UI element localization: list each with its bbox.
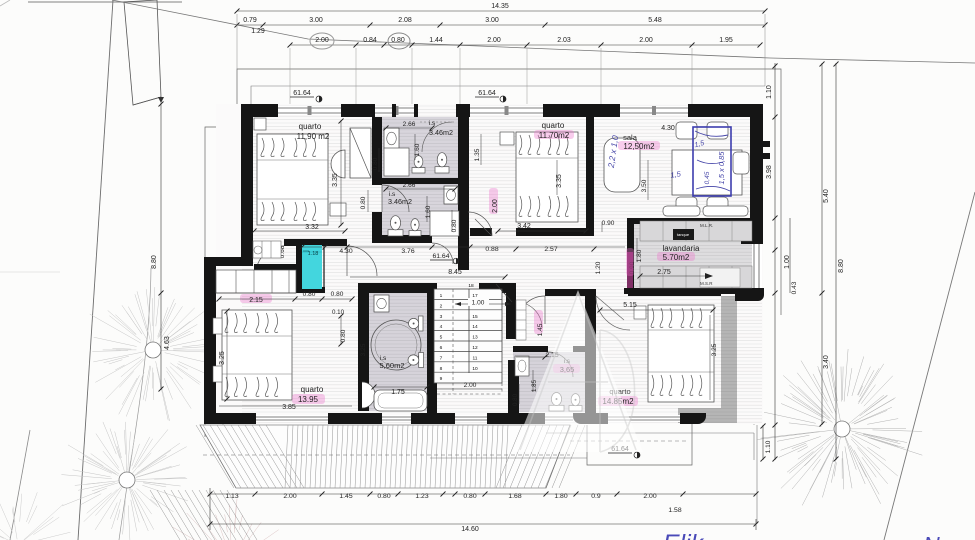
svg-text:8.80: 8.80 bbox=[838, 259, 845, 273]
svg-text:tanque: tanque bbox=[677, 232, 690, 237]
svg-text:2.03: 2.03 bbox=[557, 37, 571, 44]
svg-text:2.08: 2.08 bbox=[398, 17, 412, 24]
svg-text:0.80: 0.80 bbox=[463, 493, 476, 500]
svg-text:3.46m2: 3.46m2 bbox=[429, 128, 453, 137]
svg-text:2.66: 2.66 bbox=[403, 121, 416, 128]
svg-text:1.80: 1.80 bbox=[636, 249, 643, 262]
svg-text:61.64: 61.64 bbox=[432, 253, 449, 260]
svg-text:1.75: 1.75 bbox=[391, 389, 405, 396]
svg-text:0.79: 0.79 bbox=[243, 17, 257, 24]
svg-text:0,45: 0,45 bbox=[704, 171, 711, 184]
svg-text:11,90 m2: 11,90 m2 bbox=[297, 132, 330, 141]
svg-text:3.25: 3.25 bbox=[711, 343, 718, 356]
svg-text:2.00: 2.00 bbox=[487, 37, 501, 44]
svg-text:1.95: 1.95 bbox=[719, 37, 733, 44]
svg-text:1.29: 1.29 bbox=[251, 28, 265, 35]
svg-text:8.80: 8.80 bbox=[151, 255, 158, 269]
svg-text:15: 15 bbox=[472, 314, 478, 320]
svg-text:1.60: 1.60 bbox=[414, 143, 421, 156]
svg-text:0.80: 0.80 bbox=[372, 157, 379, 170]
svg-text:lavandaria: lavandaria bbox=[663, 244, 700, 253]
svg-text:10: 10 bbox=[472, 366, 478, 372]
svg-text:8: 8 bbox=[440, 366, 443, 372]
svg-text:3.00: 3.00 bbox=[485, 17, 499, 24]
svg-text:3.42: 3.42 bbox=[517, 223, 531, 230]
svg-text:3.46m2: 3.46m2 bbox=[388, 197, 412, 206]
svg-text:61.64: 61.64 bbox=[293, 90, 311, 97]
svg-text:2.15: 2.15 bbox=[249, 297, 263, 304]
svg-text:3.25: 3.25 bbox=[219, 351, 226, 365]
svg-text:5: 5 bbox=[440, 335, 443, 341]
svg-text:3.25: 3.25 bbox=[360, 343, 367, 356]
svg-text:Elik: Elik bbox=[663, 530, 705, 540]
svg-text:4: 4 bbox=[440, 324, 443, 330]
svg-text:61.64: 61.64 bbox=[478, 90, 496, 97]
svg-text:1.80: 1.80 bbox=[554, 493, 567, 500]
svg-text:5.48: 5.48 bbox=[648, 17, 662, 24]
svg-text:11.70m2: 11.70m2 bbox=[539, 131, 570, 140]
svg-text:M.L.R.: M.L.R. bbox=[700, 223, 713, 228]
svg-text:0.80: 0.80 bbox=[331, 291, 344, 298]
svg-text:1.18: 1.18 bbox=[308, 251, 319, 257]
svg-text:2.57: 2.57 bbox=[544, 246, 557, 253]
svg-text:3.00: 3.00 bbox=[309, 17, 323, 24]
svg-text:0.84: 0.84 bbox=[363, 37, 377, 44]
svg-text:3.98: 3.98 bbox=[766, 165, 773, 179]
svg-text:5,60m2: 5,60m2 bbox=[379, 361, 404, 370]
svg-text:5.70m2: 5.70m2 bbox=[663, 253, 690, 262]
svg-text:3.32: 3.32 bbox=[305, 224, 319, 231]
svg-text:1.58: 1.58 bbox=[668, 507, 681, 514]
svg-text:18: 18 bbox=[468, 283, 474, 289]
svg-text:1,5 x 0,85: 1,5 x 0,85 bbox=[717, 151, 726, 185]
svg-text:3.76: 3.76 bbox=[401, 248, 414, 255]
svg-text:11: 11 bbox=[473, 355, 478, 361]
svg-text:3.40: 3.40 bbox=[823, 355, 830, 369]
svg-text:0.80: 0.80 bbox=[451, 219, 458, 232]
svg-text:2.00: 2.00 bbox=[639, 37, 653, 44]
svg-text:5.40: 5.40 bbox=[823, 189, 830, 203]
svg-text:4.30: 4.30 bbox=[339, 248, 352, 255]
svg-text:3.85: 3.85 bbox=[282, 404, 296, 411]
svg-text:1.44: 1.44 bbox=[429, 37, 443, 44]
svg-text:0.43: 0.43 bbox=[791, 281, 798, 294]
svg-text:Nova: Nova bbox=[923, 532, 975, 540]
svg-text:1.10: 1.10 bbox=[766, 85, 773, 99]
svg-text:1.00: 1.00 bbox=[472, 300, 485, 307]
svg-text:2: 2 bbox=[440, 303, 443, 309]
svg-text:1.45: 1.45 bbox=[339, 493, 352, 500]
svg-text:13: 13 bbox=[472, 335, 478, 341]
svg-text:5.15: 5.15 bbox=[623, 302, 637, 309]
svg-text:1.45: 1.45 bbox=[537, 323, 544, 336]
svg-text:1.13: 1.13 bbox=[225, 493, 238, 500]
svg-text:2.75: 2.75 bbox=[657, 269, 671, 276]
svg-text:1.68: 1.68 bbox=[508, 493, 521, 500]
svg-text:2.66: 2.66 bbox=[403, 182, 416, 189]
svg-text:14.35: 14.35 bbox=[491, 3, 509, 10]
svg-text:9: 9 bbox=[440, 376, 443, 382]
svg-text:1.60: 1.60 bbox=[425, 205, 432, 218]
svg-text:1: 1 bbox=[440, 293, 443, 299]
svg-text:1.10: 1.10 bbox=[765, 440, 772, 453]
svg-text:0.80: 0.80 bbox=[360, 196, 367, 209]
svg-text:8.45: 8.45 bbox=[448, 269, 462, 276]
svg-text:2.00: 2.00 bbox=[283, 493, 296, 500]
svg-text:3: 3 bbox=[440, 314, 443, 320]
svg-text:4.63: 4.63 bbox=[164, 336, 171, 350]
svg-text:1.23: 1.23 bbox=[415, 493, 428, 500]
svg-text:0.9: 0.9 bbox=[591, 493, 601, 500]
svg-text:quarto: quarto bbox=[301, 385, 324, 394]
svg-text:2.00: 2.00 bbox=[643, 493, 656, 500]
svg-text:0.80: 0.80 bbox=[512, 393, 519, 406]
svg-text:1.20: 1.20 bbox=[595, 261, 602, 274]
svg-text:6: 6 bbox=[440, 345, 443, 351]
svg-text:2.00: 2.00 bbox=[464, 382, 477, 389]
svg-text:3.35: 3.35 bbox=[556, 174, 563, 188]
svg-text:2.00: 2.00 bbox=[315, 37, 329, 44]
svg-text:12,50m2: 12,50m2 bbox=[623, 142, 655, 151]
svg-text:i.s: i.s bbox=[429, 120, 436, 127]
svg-text:0.80: 0.80 bbox=[340, 329, 347, 342]
svg-text:0.80: 0.80 bbox=[377, 493, 390, 500]
svg-text:14: 14 bbox=[472, 324, 478, 330]
svg-text:0.80: 0.80 bbox=[391, 37, 405, 44]
svg-text:1.35: 1.35 bbox=[474, 148, 481, 161]
svg-text:13.95: 13.95 bbox=[298, 395, 319, 404]
svg-text:3.35: 3.35 bbox=[332, 173, 339, 187]
svg-text:quarto: quarto bbox=[299, 122, 322, 131]
svg-text:14.60: 14.60 bbox=[461, 526, 479, 533]
svg-text:M.S.R: M.S.R bbox=[700, 281, 713, 286]
svg-text:1.85: 1.85 bbox=[531, 379, 538, 392]
svg-text:12: 12 bbox=[472, 345, 478, 351]
svg-text:2.00: 2.00 bbox=[492, 199, 499, 213]
svg-text:0.10: 0.10 bbox=[332, 309, 345, 316]
svg-text:sala: sala bbox=[623, 133, 638, 142]
svg-text:0.88: 0.88 bbox=[485, 246, 498, 253]
svg-text:7: 7 bbox=[440, 355, 443, 361]
svg-text:3.50: 3.50 bbox=[641, 179, 648, 192]
svg-text:4.30: 4.30 bbox=[661, 125, 675, 132]
svg-text:quarto: quarto bbox=[542, 121, 565, 130]
svg-text:0.80: 0.80 bbox=[303, 291, 316, 298]
svg-text:0.90: 0.90 bbox=[602, 220, 615, 227]
